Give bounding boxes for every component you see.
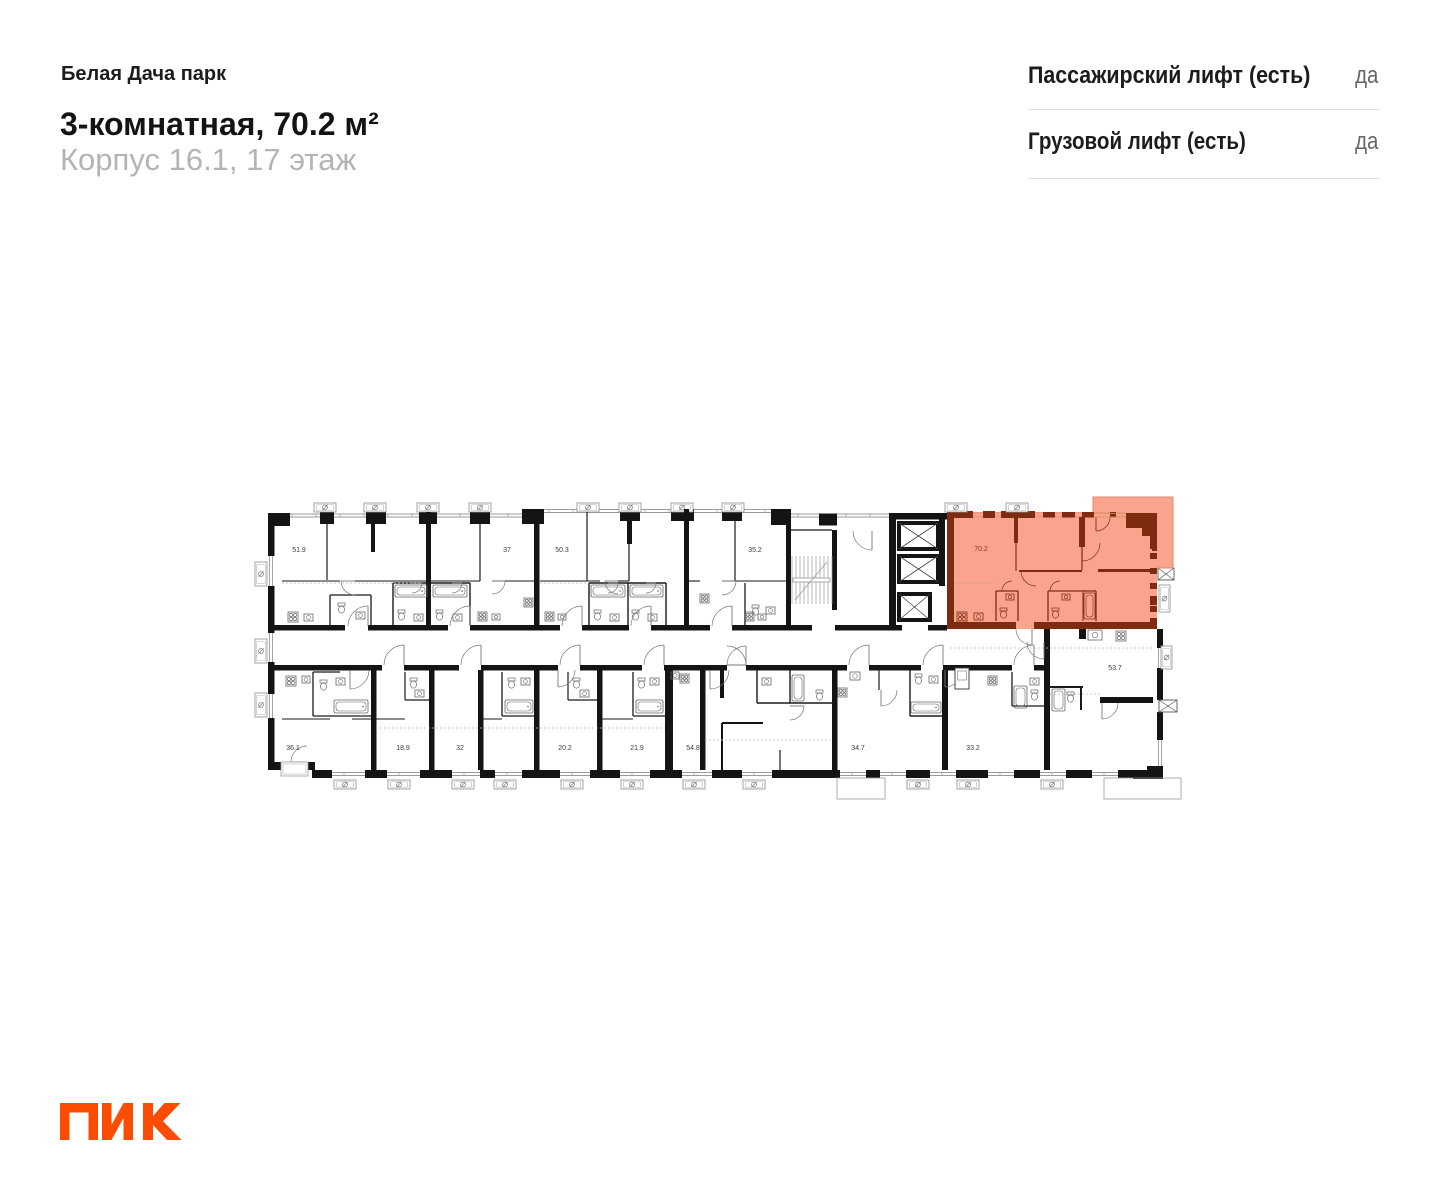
svg-text:70.2: 70.2: [974, 546, 988, 553]
svg-text:33.2: 33.2: [966, 745, 980, 752]
svg-text:32: 32: [456, 745, 464, 752]
svg-text:20.2: 20.2: [558, 745, 572, 752]
svg-text:21.9: 21.9: [630, 745, 644, 752]
svg-text:37: 37: [503, 547, 511, 554]
svg-text:34.7: 34.7: [851, 745, 865, 752]
svg-text:35.2: 35.2: [748, 547, 762, 554]
svg-text:18.9: 18.9: [396, 745, 410, 752]
svg-text:53.7: 53.7: [1108, 665, 1122, 672]
svg-text:51.9: 51.9: [292, 547, 306, 554]
svg-text:54.8: 54.8: [686, 745, 700, 752]
svg-text:36.1: 36.1: [286, 745, 300, 752]
svg-text:50.3: 50.3: [555, 547, 569, 554]
